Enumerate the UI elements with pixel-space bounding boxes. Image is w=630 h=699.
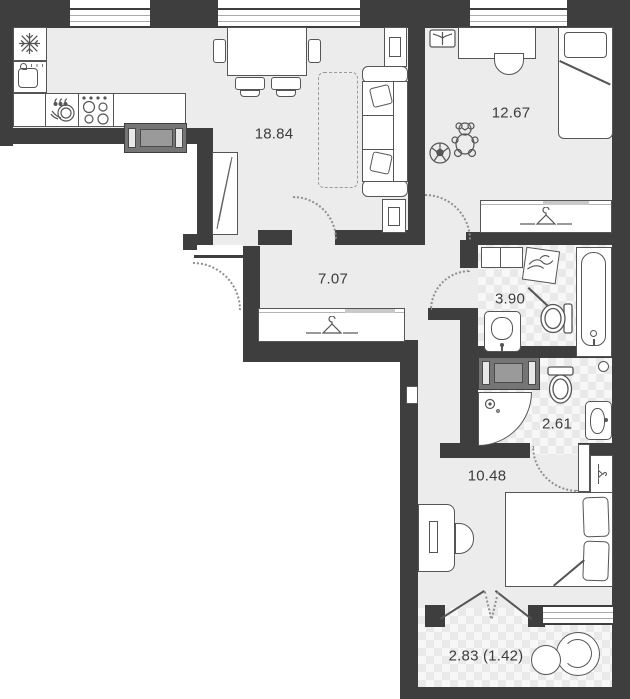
wc-door-leaf <box>578 444 590 492</box>
sofa-pillow-2 <box>369 151 393 175</box>
dining-chair-bottom-1 <box>235 77 265 90</box>
bookshelf-icon <box>429 29 456 48</box>
wall-top-pier-3 <box>360 0 470 28</box>
hanger-icon <box>590 463 612 485</box>
floor-plan: 18.84 12.67 7.07 3.90 2.61 10.48 2.83 (1… <box>0 0 630 699</box>
hallway-wardrobe <box>258 308 405 342</box>
shower-head-icon <box>483 397 503 417</box>
fridge <box>13 27 47 61</box>
bathroom-toilet <box>540 301 573 336</box>
bedroom-area-label: 10.48 <box>468 469 507 484</box>
entry-door-leaf <box>194 255 246 258</box>
children-wardrobe <box>480 200 612 233</box>
bathtub <box>576 247 612 357</box>
children-room-area-label: 12.67 <box>492 106 531 121</box>
wall-hallway-bottom <box>243 340 418 362</box>
carpet <box>318 72 358 188</box>
hanger-icon <box>516 207 576 229</box>
dining-table <box>227 27 307 76</box>
kitchen-sink-bowl <box>18 68 38 88</box>
dining-chair-left <box>213 39 226 63</box>
kitchen-counter-cell <box>13 93 47 127</box>
sofa-back <box>393 81 408 182</box>
electric-panel <box>406 386 418 404</box>
wc-sink <box>585 401 612 440</box>
bathroom-cabinet-2 <box>500 247 523 268</box>
wall-entry-stub-left <box>183 234 197 250</box>
balcony-chair-large <box>556 632 600 676</box>
washing-machine <box>478 357 540 390</box>
wall-living-bottom-a <box>258 230 292 245</box>
dining-chair-right <box>308 39 321 63</box>
kitchen-dish-rack <box>45 93 80 127</box>
tv <box>124 123 187 153</box>
hanger-icon <box>302 316 362 338</box>
laundry-basket <box>522 247 560 284</box>
dining-chair-bottom-2 <box>271 77 301 90</box>
wall-right <box>612 8 630 699</box>
vent-circle <box>598 361 609 372</box>
dresser <box>382 199 406 233</box>
bathroom-area-label: 3.90 <box>495 292 525 307</box>
kitchen-counter-cell-2 <box>113 93 186 127</box>
wall-bathroom-top <box>466 232 612 245</box>
bed-pillow-2 <box>582 541 609 582</box>
wc-toilet <box>546 366 575 405</box>
nightstand <box>384 27 407 67</box>
top-window-band <box>0 8 630 28</box>
wall-living-left <box>197 128 213 250</box>
wall-top-pier-2 <box>150 0 218 28</box>
bedroom-monitor <box>429 521 438 553</box>
dining-chair-bottom-2-base <box>276 90 296 97</box>
balcony-partition-window <box>543 605 613 625</box>
wall-left <box>0 8 13 146</box>
balcony-chair-small <box>531 645 561 675</box>
dining-chair-bottom-1-base <box>240 90 260 97</box>
teddy-bear-icon <box>448 118 480 158</box>
shower-wc-area-label: 2.61 <box>542 417 572 432</box>
balcony-area-label: 2.83 (1.42) <box>449 649 524 664</box>
sofa-armrest-bottom <box>362 180 408 197</box>
hallway-area-label: 7.07 <box>318 272 348 287</box>
kitchen-sink-cabinet <box>13 61 47 93</box>
wall-bathroom-left-b <box>460 308 478 455</box>
soccer-ball-icon <box>428 141 452 165</box>
children-bed-pillow <box>564 32 607 58</box>
snowflake-icon <box>17 31 42 56</box>
bathroom-cabinet-1 <box>481 247 502 268</box>
bathroom-sink <box>484 311 521 352</box>
living-kitchen-area-label: 18.84 <box>255 127 294 142</box>
decor-shelf <box>212 152 238 235</box>
wall-bottom <box>400 687 630 699</box>
kitchen-faucet-icon <box>20 63 27 70</box>
bedroom-closet <box>590 455 613 493</box>
wall-bathroom-left-a <box>460 240 478 268</box>
stove <box>78 93 114 127</box>
wall-living-children <box>408 28 425 233</box>
bed-pillow-1 <box>582 497 609 538</box>
leaf-decor-icon <box>213 153 237 233</box>
